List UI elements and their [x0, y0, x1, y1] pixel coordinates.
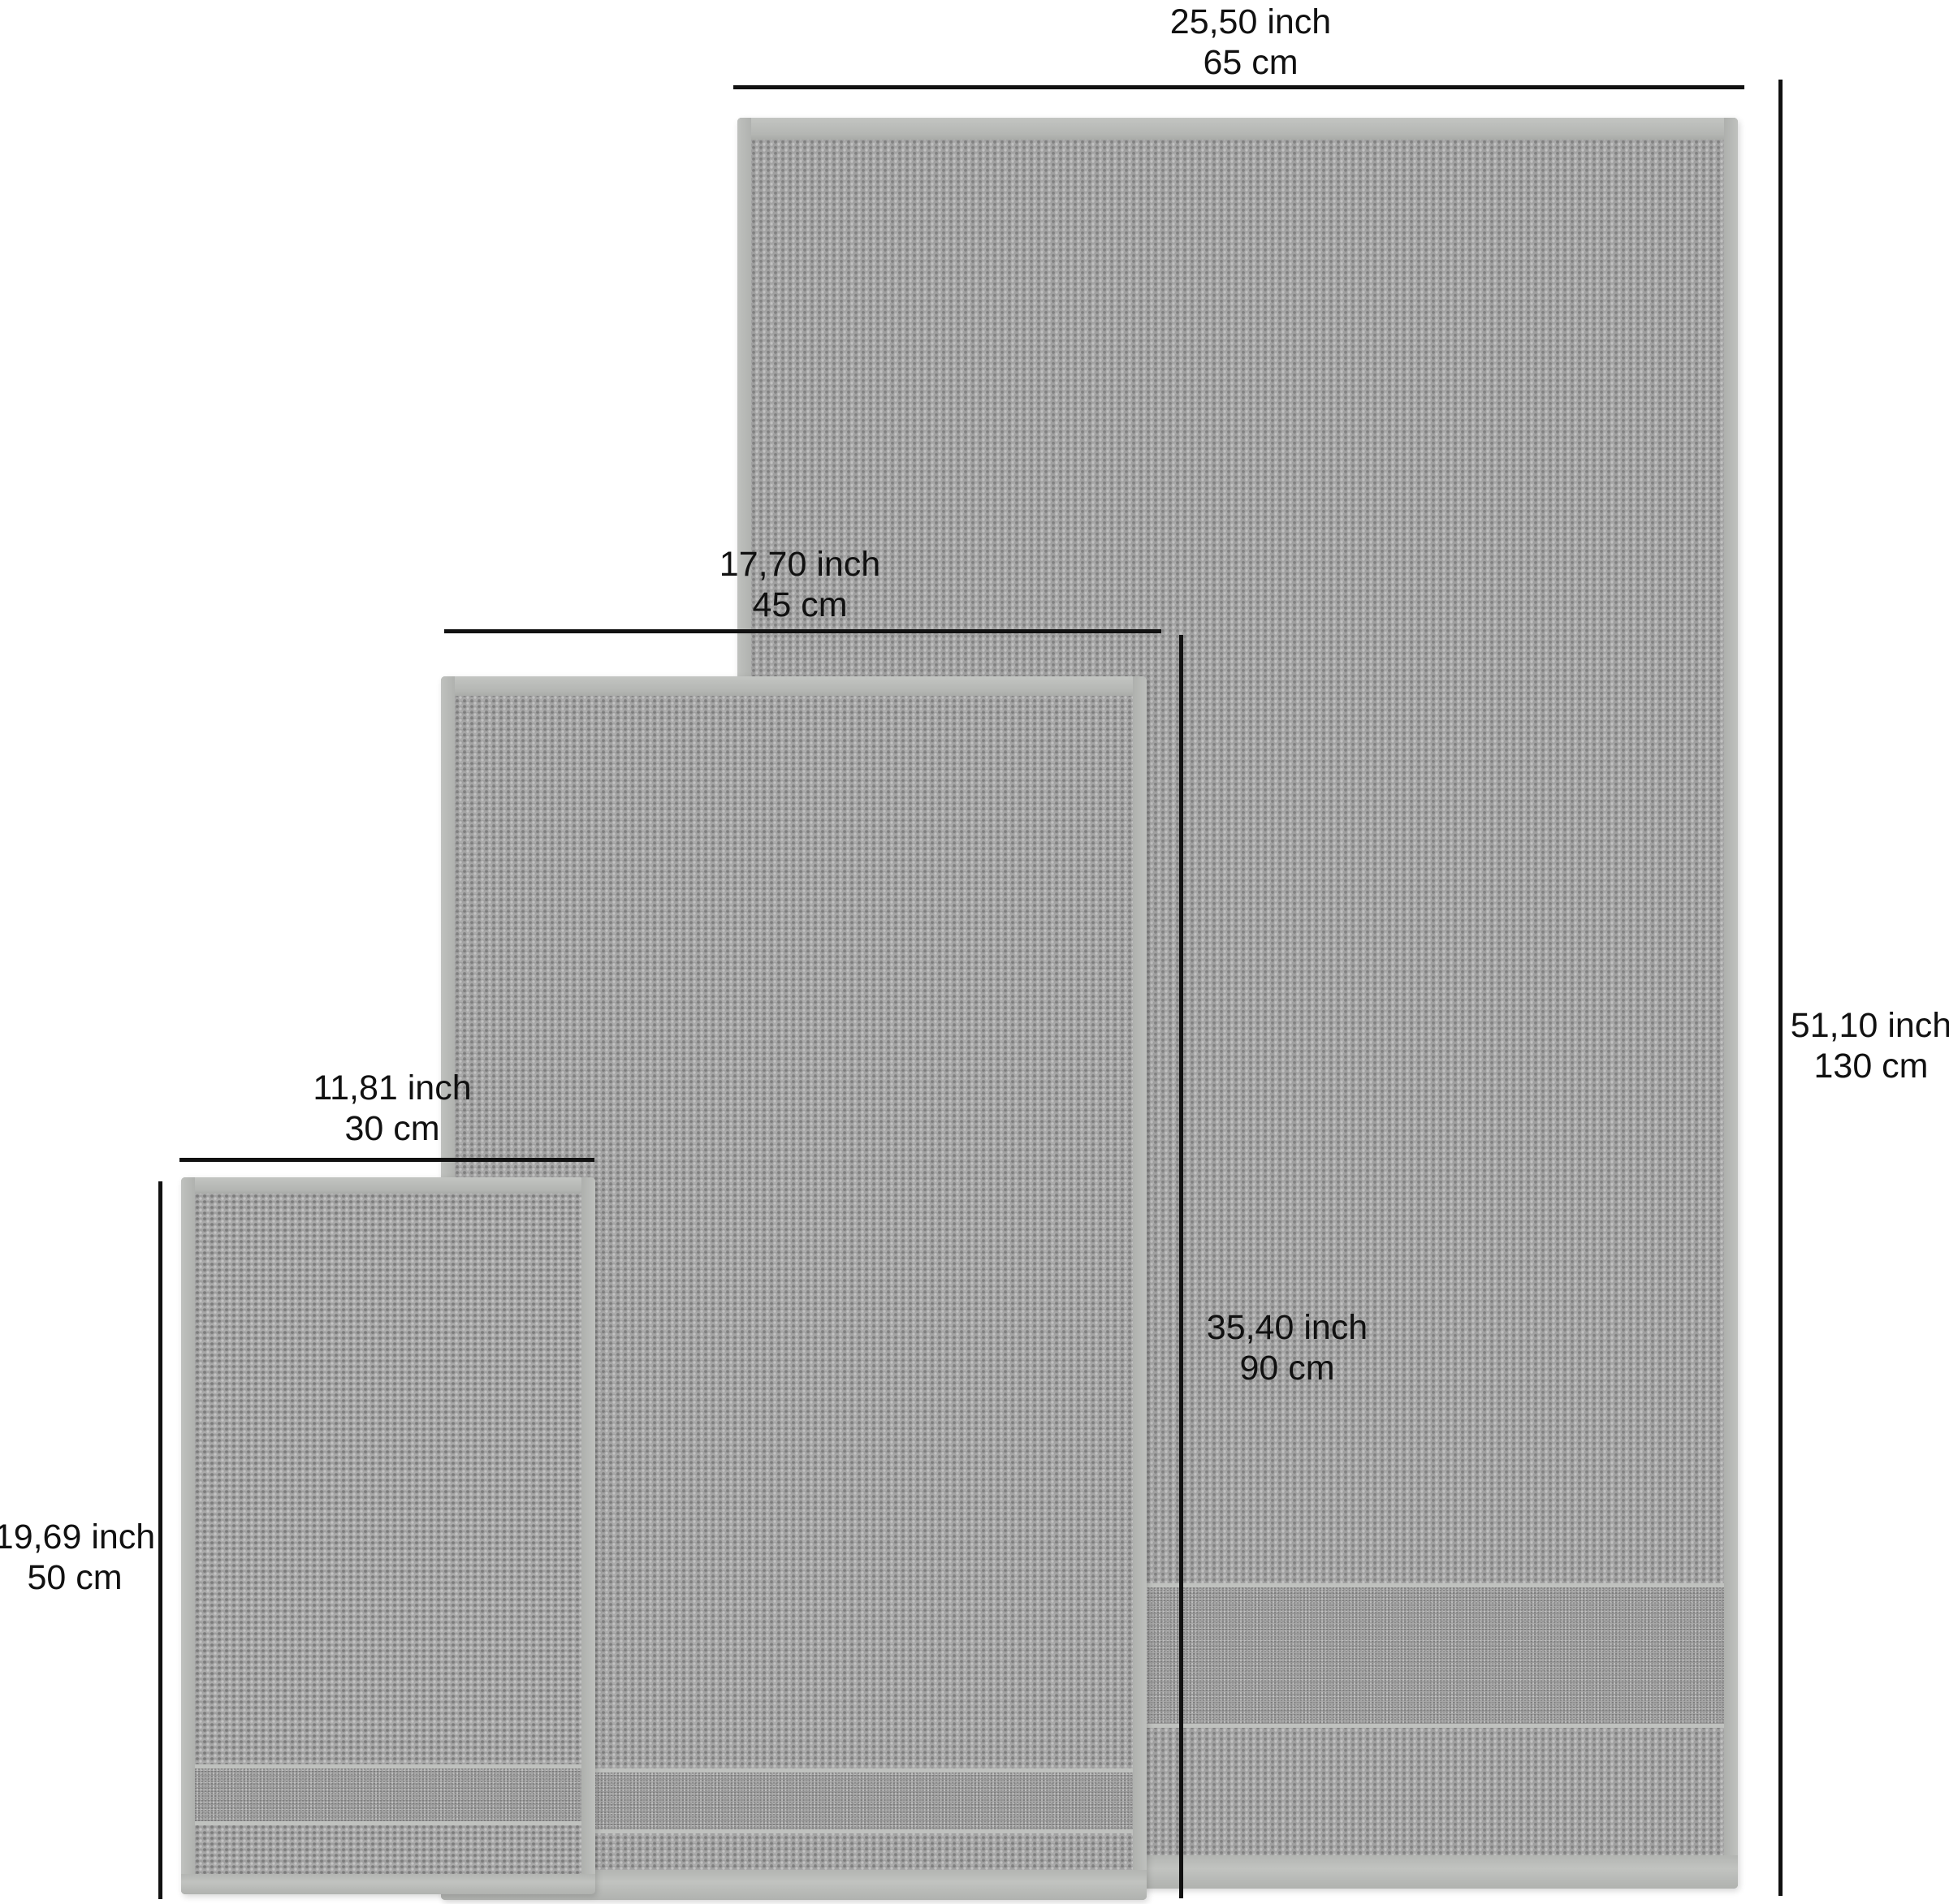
small-towel-border-band — [195, 1764, 581, 1825]
large-towel-right-edge — [1724, 118, 1738, 1889]
small-height-label-inch: 19,69 inch — [0, 1517, 155, 1557]
large-height-dimension-line — [1778, 80, 1783, 1896]
large-towel-top-hem — [737, 118, 1738, 140]
large-width-label-inch: 25,50 inch — [1170, 2, 1331, 42]
small-height-label-cm: 50 cm — [0, 1557, 155, 1598]
small-width-label-inch: 11,81 inch — [313, 1068, 471, 1108]
large-height-label: 51,10 inch 130 cm — [1791, 1005, 1949, 1086]
large-height-label-cm: 130 cm — [1791, 1046, 1949, 1086]
large-height-label-inch: 51,10 inch — [1791, 1005, 1949, 1046]
small-towel — [181, 1177, 595, 1894]
medium-height-label-inch: 35,40 inch — [1207, 1307, 1368, 1348]
small-towel-left-edge — [181, 1177, 195, 1894]
small-height-label: 19,69 inch 50 cm — [0, 1517, 155, 1598]
large-width-dimension-line — [733, 85, 1744, 89]
large-width-label: 25,50 inch 65 cm — [1170, 2, 1331, 83]
medium-towel-right-edge — [1133, 676, 1147, 1900]
medium-width-label-inch: 17,70 inch — [720, 544, 880, 585]
medium-width-label-cm: 45 cm — [720, 585, 880, 625]
medium-width-dimension-line — [444, 629, 1161, 633]
medium-width-label: 17,70 inch 45 cm — [720, 544, 880, 625]
small-width-label: 11,81 inch 30 cm — [313, 1068, 471, 1149]
medium-height-dimension-line — [1179, 635, 1183, 1898]
medium-height-label-cm: 90 cm — [1207, 1348, 1368, 1388]
small-height-dimension-line — [158, 1181, 162, 1899]
medium-height-label: 35,40 inch 90 cm — [1207, 1307, 1368, 1388]
small-width-label-cm: 30 cm — [313, 1108, 471, 1149]
small-towel-top-hem — [181, 1177, 595, 1194]
small-width-dimension-line — [179, 1158, 594, 1162]
towel-size-diagram: 25,50 inch 65 cm 51,10 inch 130 cm 17,70… — [0, 0, 1949, 1904]
small-towel-right-edge — [581, 1177, 595, 1894]
medium-towel-top-hem — [441, 676, 1147, 696]
large-width-label-cm: 65 cm — [1170, 42, 1331, 83]
small-towel-bottom-hem — [181, 1874, 595, 1894]
